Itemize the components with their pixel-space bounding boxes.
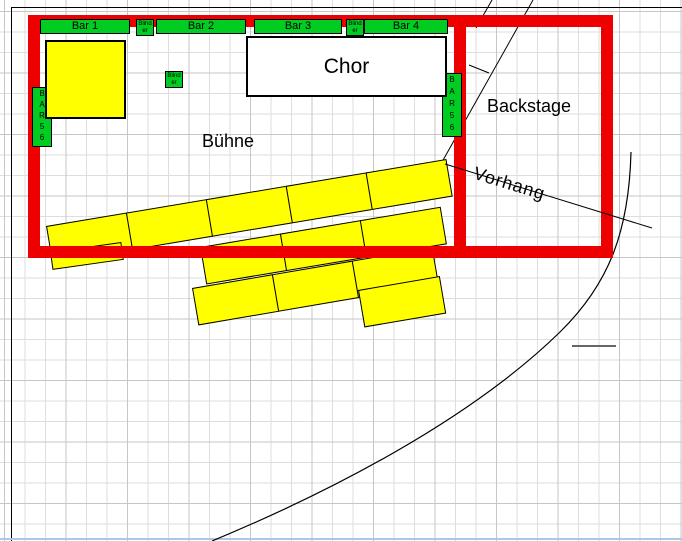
choir-label: Chor — [324, 55, 370, 79]
wall-right[interactable] — [601, 15, 613, 258]
blinder-box-1[interactable]: Blind er — [136, 19, 154, 36]
blinder-box-2[interactable]: Blind er — [346, 19, 364, 36]
floorplan-canvas: Bar 1 Blind er Bar 2 Bar 3 Blind er Bar … — [0, 0, 682, 541]
blinder-label-line1: Blind — [137, 21, 153, 28]
bar-2[interactable]: Bar 2 — [156, 19, 246, 34]
blinder-label-line2: er — [347, 28, 363, 35]
bar-3[interactable]: Bar 3 — [254, 19, 342, 34]
bar-3-label: Bar 3 — [285, 21, 311, 32]
blinder-box-3[interactable]: Blind er — [165, 71, 183, 88]
bar-1-label: Bar 1 — [72, 21, 98, 32]
blinder-label-line1: Blind — [347, 21, 363, 28]
bar-2-label: Bar 2 — [188, 21, 214, 32]
blinder-label-line2: er — [137, 28, 153, 35]
choir-box[interactable]: Chor — [246, 36, 447, 97]
diagonal-line-c[interactable] — [469, 65, 489, 73]
platform-square[interactable] — [45, 40, 126, 119]
blinder-label-line2: er — [166, 80, 182, 87]
stage-label[interactable]: Bühne — [202, 131, 254, 152]
wall-bottom[interactable] — [28, 246, 613, 258]
backstage-label[interactable]: Backstage — [487, 96, 571, 117]
bar-4-label: Bar 4 — [393, 21, 419, 32]
bar-4[interactable]: Bar 4 — [364, 19, 448, 34]
blinder-label-line1: Blind — [166, 73, 182, 80]
bar-1[interactable]: Bar 1 — [40, 19, 130, 34]
